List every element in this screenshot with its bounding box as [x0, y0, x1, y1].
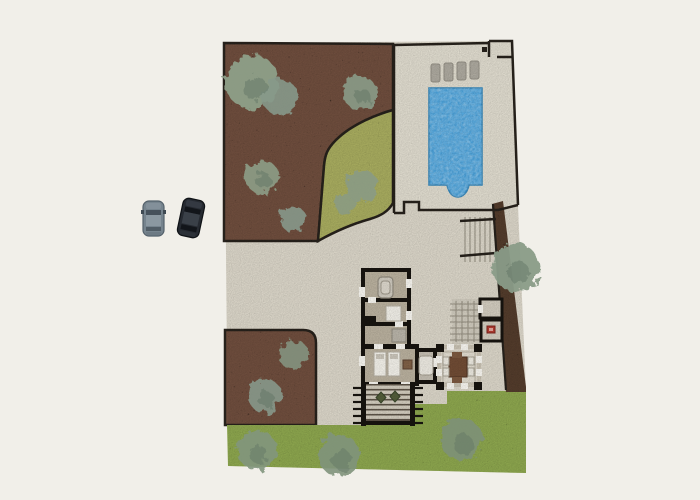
car-gray-mirror: [163, 210, 166, 214]
tree-core: [255, 172, 271, 188]
site-plan-svg: [0, 0, 700, 500]
tree-core: [258, 391, 274, 407]
tree-core: [249, 445, 267, 463]
tree-canopy: [280, 206, 306, 232]
car-gray-trunk: [146, 232, 161, 235]
tree-canopy: [279, 340, 309, 370]
tree-core: [354, 88, 370, 104]
tree-core: [243, 76, 267, 100]
scene-layer: [141, 39, 540, 476]
tree-core: [331, 449, 351, 469]
car-gray-windshield: [146, 210, 161, 215]
tree-core: [507, 261, 529, 283]
car-gray-rear-window: [146, 227, 161, 231]
car-gray-roof: [146, 215, 161, 226]
tree-canopy: [335, 195, 355, 215]
tree-canopy: [262, 79, 298, 115]
site-plan-canvas[interactable]: [0, 0, 700, 500]
car-gray-hood: [146, 203, 161, 209]
car-gray-mirror: [141, 210, 144, 214]
tree-core: [453, 434, 473, 454]
